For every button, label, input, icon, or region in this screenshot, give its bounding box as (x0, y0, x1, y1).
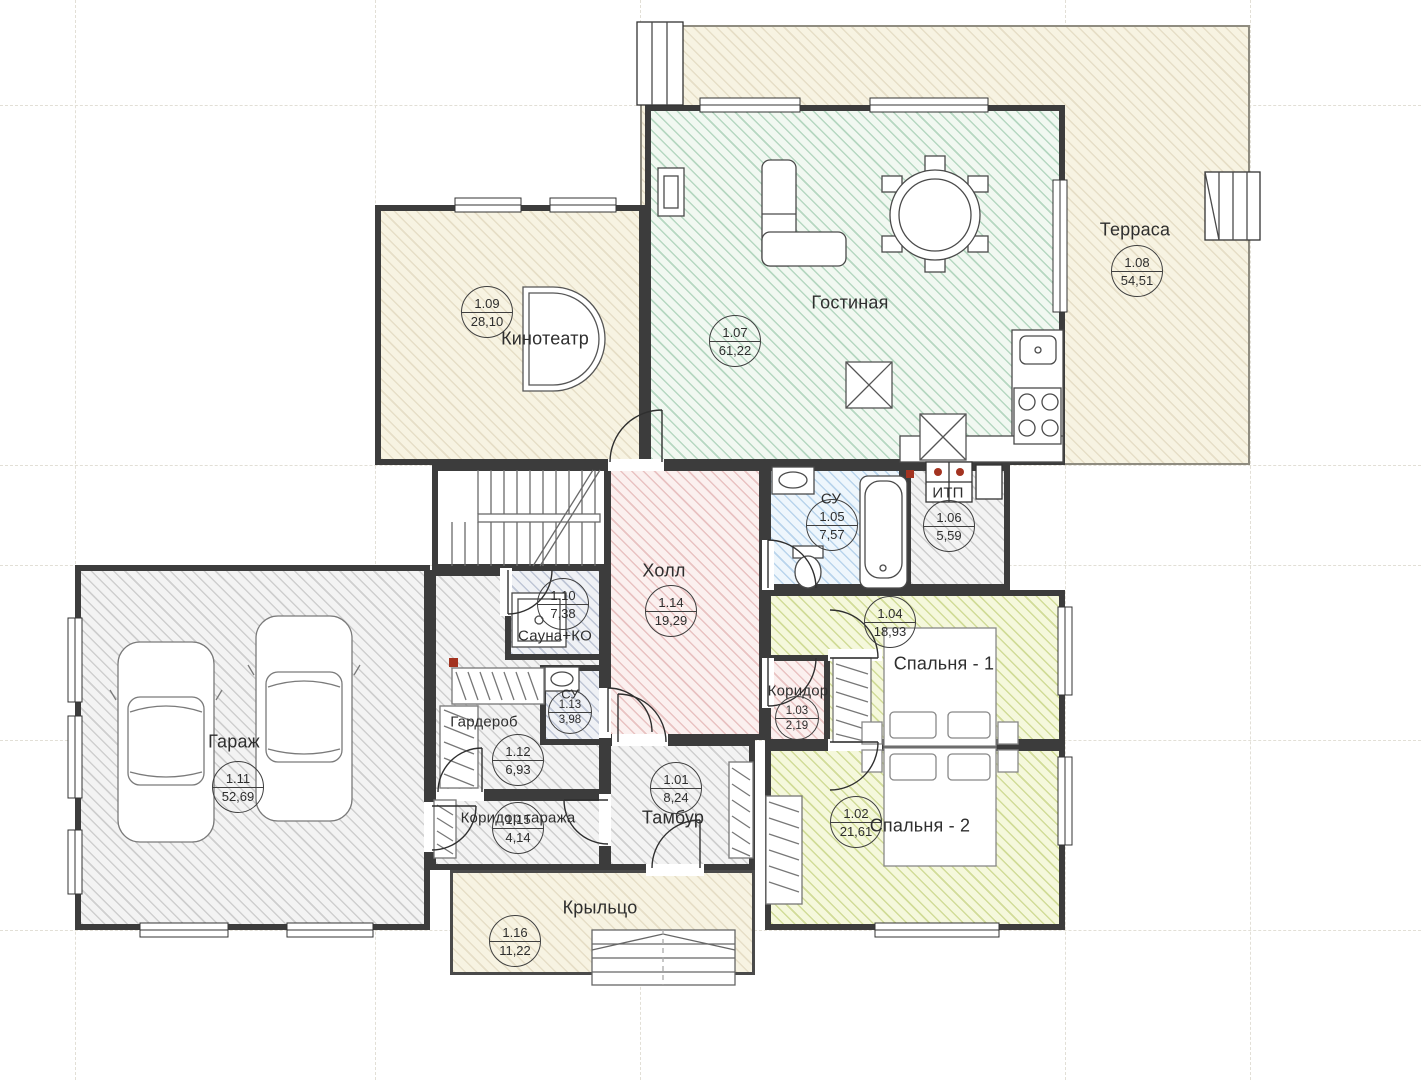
room-label-garage-corridor: Коридор гаража (461, 810, 576, 827)
door-opening (599, 794, 611, 846)
room-label-wardrobe: Гардероб (450, 714, 518, 731)
room-label-itp: ИТП (932, 485, 963, 502)
room-stamp-wardrobe: 1.126,93 (492, 734, 544, 786)
room-label-terrace: Терраса (1100, 220, 1170, 241)
room-label-garage: Гараж (208, 732, 260, 753)
door-opening (612, 734, 668, 746)
room-label-living: Гостиная (811, 293, 888, 314)
room-stamp-bedroom-1: 1.0418,93 (864, 596, 916, 648)
room-label-bathroom: СУ (821, 491, 841, 508)
door-opening (424, 802, 436, 852)
room-stamp-garage: 1.1152,69 (212, 761, 264, 813)
room-stamp-sauna: 1.107,38 (537, 578, 589, 630)
door-opening (646, 864, 704, 876)
room-stamp-living: 1.0761,22 (709, 315, 761, 367)
door-opening (608, 459, 664, 471)
floor-plan: Гостиная 1.0761,22 Терраса 1.0854,51 Кин… (0, 0, 1421, 1080)
room-bedroom-2 (765, 745, 1065, 930)
door-opening (828, 739, 882, 751)
room-label-bedroom-2: Спальня - 2 (870, 816, 971, 837)
room-stamp-terrace: 1.0854,51 (1111, 245, 1163, 297)
room-label-corridor: Коридор (768, 683, 829, 700)
room-stamp-vestibule: 1.018,24 (650, 762, 702, 814)
room-label-sauna: Сауна+КО (518, 628, 592, 645)
door-opening (599, 688, 611, 738)
room-stamp-itp: 1.065,59 (923, 500, 975, 552)
door-opening (828, 649, 882, 661)
room-stamp-porch: 1.1611,22 (489, 915, 541, 967)
door-opening (500, 568, 512, 616)
room-stamp-corridor: 1.032,19 (775, 696, 819, 740)
room-living-room (645, 105, 1065, 465)
room-label-cinema: Кинотеатр (501, 329, 589, 350)
door-opening (436, 789, 484, 801)
stairs-area (432, 465, 610, 570)
room-label-vestibule: Тамбур (642, 808, 704, 829)
room-label-hall: Холл (642, 561, 685, 582)
room-label-wc: СУ (561, 687, 579, 702)
room-label-bedroom-1: Спальня - 1 (894, 654, 995, 675)
door-opening (762, 540, 774, 590)
room-label-porch: Крыльцо (563, 898, 638, 919)
grid-line (1250, 0, 1251, 1080)
room-stamp-hall: 1.1419,29 (645, 585, 697, 637)
